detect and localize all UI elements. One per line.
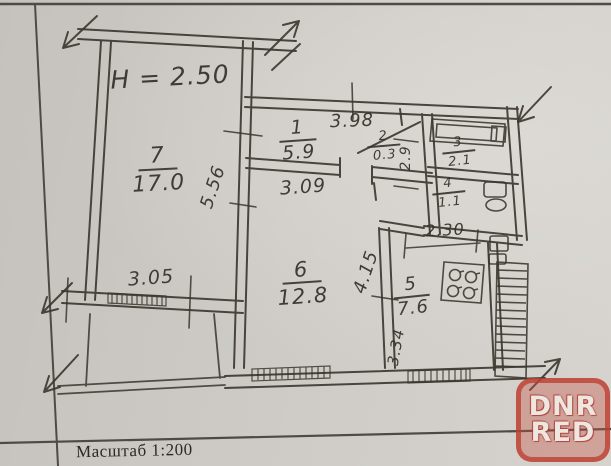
room-1-label: 1 5.9 — [278, 117, 318, 164]
watermark-line2: RED — [531, 420, 596, 446]
dim-sanitary-width: 2.30 — [425, 219, 466, 240]
balcony — [58, 314, 225, 394]
scale-label: Масштаб 1:200 — [76, 440, 193, 462]
dim-corridor-length: 3.98 — [330, 110, 375, 133]
room-1-number: 1 — [278, 117, 317, 142]
dim-room6-width: 3.09 — [279, 174, 327, 199]
room-4-label: 4 1.1 — [431, 175, 467, 211]
dnr-red-watermark: DNR RED — [516, 378, 610, 462]
room-2-label: 2 0.3 — [366, 128, 402, 163]
dim-room7-width: 3.05 — [127, 265, 175, 290]
room-7-area: 17.0 — [132, 169, 186, 197]
dim-hall-depth: 2.9 — [398, 145, 414, 170]
room-2-area: 0.3 — [372, 145, 397, 163]
room-7-label: 7 17.0 — [130, 143, 186, 197]
room-7-number: 7 — [137, 143, 177, 171]
scanned-floor-plan-page: H = 2.50 7 17.0 1 5.9 2 0.3 3 2.1 4 1.1 … — [0, 0, 611, 466]
room-6-label: 6 12.8 — [275, 257, 329, 310]
room-5-label: 5 7.6 — [392, 274, 433, 320]
room-6-area: 12.8 — [277, 282, 329, 310]
stove-icon — [441, 262, 484, 303]
toilet-icon — [484, 182, 506, 211]
room-5-area: 7.6 — [396, 296, 430, 320]
room-3-label: 3 2.1 — [441, 134, 477, 170]
room-3-area: 2.1 — [447, 151, 472, 169]
room-4-area: 1.1 — [437, 192, 462, 210]
room-1-area: 5.9 — [281, 140, 316, 164]
room-6-number: 6 — [281, 257, 321, 285]
